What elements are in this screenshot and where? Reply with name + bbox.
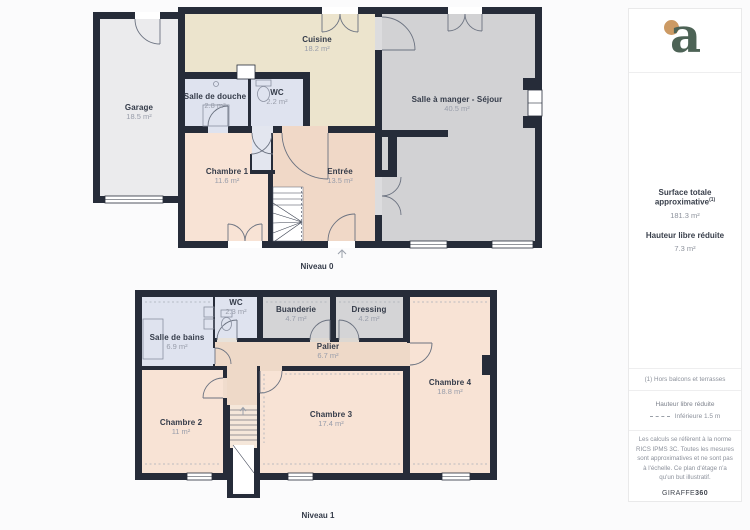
room-label-cuisine: Cuisine 18.2 m² — [302, 35, 332, 54]
disclaimer-text: Les calculs se réfèrent à la norme RICS … — [636, 435, 734, 483]
surface-total-value: 181.3 m² — [670, 211, 700, 220]
room-label-palier: Palier 6.7 m² — [317, 342, 339, 361]
legend-section: Hauteur libre réduite Inférieure 1.5 m — [629, 391, 741, 431]
room-label-chambre-1: Chambre 1 11.6 m² — [206, 167, 248, 186]
room-label-chambre-4: Chambre 4 18.8 m² — [429, 378, 471, 397]
totals-section: Surface totale approximative(1) 181.3 m²… — [629, 73, 741, 369]
disclaimer-section: Les calculs se réfèrent à la norme RICS … — [629, 431, 741, 501]
logo-section: a — [629, 9, 741, 73]
niveau-1-plan: Salle de bains 6.9 m² WC 2.3 m² Buanderi… — [133, 283, 503, 528]
floor-label-niveau-0: Niveau 0 — [301, 262, 334, 271]
info-panel: a Surface totale approximative(1) 181.3 … — [628, 8, 742, 502]
brand-name: GIRAFFE360 — [662, 490, 708, 497]
room-label-salle-de-douche: Salle de douche 2.8 m² — [184, 92, 246, 111]
room-label-wc-0: WC 2.2 m² — [266, 88, 287, 107]
room-label-buanderie: Buanderie 4.7 m² — [276, 305, 316, 324]
reduced-height-value: 7.3 m² — [674, 244, 695, 253]
room-label-sejour: Salle à manger - Séjour 40.5 m² — [412, 95, 503, 114]
room-label-wc-1: WC 2.3 m² — [225, 298, 246, 317]
logo-letter: a — [670, 10, 701, 63]
room-label-dressing: Dressing 4.2 m² — [351, 305, 386, 324]
floorplan-page: Garage 18.5 m² Cuisine 18.2 m² Salle de … — [0, 0, 750, 530]
surface-total-label: Surface totale approximative(1) — [633, 188, 737, 207]
room-label-entree: Entrée 13.5 m² — [327, 167, 353, 186]
niveau-0-plan: Garage 18.5 m² Cuisine 18.2 m² Salle de … — [85, 7, 545, 277]
room-label-salle-de-bains: Salle de bains 6.9 m² — [150, 333, 205, 352]
floor-label-niveau-1: Niveau 1 — [302, 511, 335, 520]
legend-value: Inférieure 1.5 m — [675, 413, 721, 420]
room-label-garage: Garage 18.5 m² — [125, 103, 153, 122]
room-label-chambre-3: Chambre 3 17.4 m² — [310, 410, 352, 429]
room-label-chambre-2: Chambre 2 11 m² — [160, 418, 202, 437]
brand-logo: a — [668, 16, 702, 66]
footnote: (1) Hors balcons et terrasses — [629, 369, 741, 390]
reduced-height-label: Hauteur libre réduite — [646, 231, 724, 240]
legend-title: Hauteur libre réduite — [656, 401, 715, 408]
dashed-line-icon — [650, 416, 670, 417]
legend-row: Inférieure 1.5 m — [650, 413, 721, 420]
